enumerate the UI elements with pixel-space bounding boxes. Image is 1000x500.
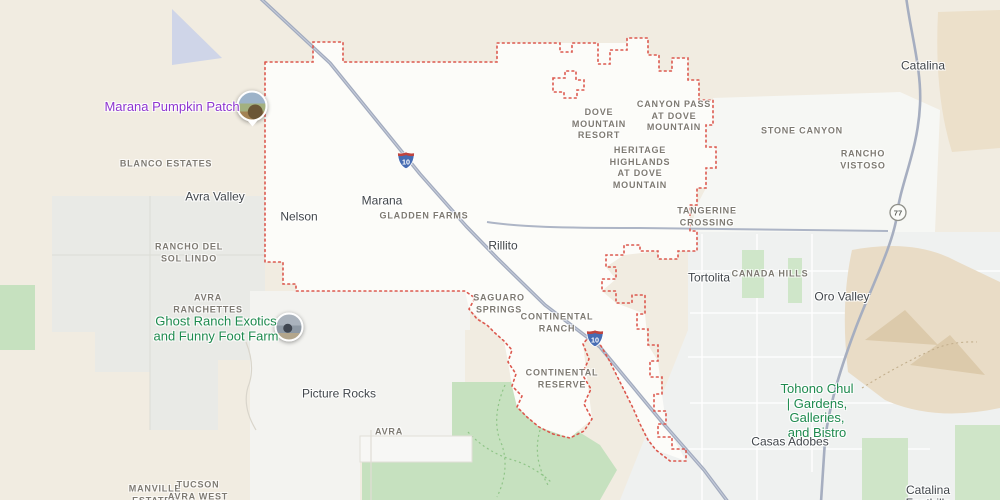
heritage-highlands-at-dove-mountain-label-text: AT DOVE [610, 168, 671, 180]
rancho-vistoso-label-text: VISTOSO [840, 160, 885, 172]
tangerine-crossing-label-text: TANGERINE [677, 206, 737, 218]
map-canvas[interactable]: 101077 Marana Pumpkin PatchBLANCO ESTATE… [0, 0, 1000, 500]
tohono-chul-label-text: Tohono Chul [781, 382, 854, 397]
tortolita-label-text: Tortolita [688, 272, 730, 285]
casas-adobes-label[interactable]: Casas Adobes [751, 436, 828, 449]
rancho-vistoso-label-text: RANCHO [840, 149, 885, 161]
tohono-chul-label-text: Galleries, [781, 411, 854, 426]
continental-ranch-label-text: RANCH [521, 323, 594, 335]
rillito-label[interactable]: Rillito [488, 240, 517, 253]
picture-rocks-label[interactable]: Picture Rocks [302, 388, 376, 401]
park-area-canada-hills-2 [788, 258, 802, 303]
continental-reserve-label-text: CONTINENTAL [526, 368, 599, 380]
nelson-label-text: Nelson [280, 211, 317, 224]
park-area-west [0, 285, 35, 350]
tohono-chul-label-text: | Gardens, [781, 397, 854, 412]
dove-mountain-resort-label-text: RESORT [572, 130, 626, 142]
rancho-vistoso-label[interactable]: RANCHOVISTOSO [840, 149, 885, 172]
tucson-avra-west-label-text: TUCSON [168, 480, 228, 492]
catalina-label[interactable]: Catalina [901, 60, 945, 73]
picture-rocks-label-text: Picture Rocks [302, 388, 376, 401]
tortolita-label[interactable]: Tortolita [688, 272, 730, 285]
saguaro-springs-label-text: SAGUARO [473, 293, 525, 305]
marana-label-text: Marana [362, 195, 403, 208]
tohono-chul-label[interactable]: Tohono Chul| Gardens,Galleries,and Bistr… [781, 382, 854, 440]
avra-parcel [360, 436, 472, 462]
catalina-foothills-label[interactable]: CatalinaFoothills [906, 484, 951, 500]
avra-ranchettes-label-text: AVRA [173, 293, 243, 305]
heritage-highlands-at-dove-mountain-label-text: HIGHLANDS [610, 157, 671, 169]
park-area-southeast [862, 438, 908, 500]
saguaro-springs-label-text: SPRINGS [473, 304, 525, 316]
canyon-pass-at-dove-mountain-label-text: MOUNTAIN [637, 122, 711, 134]
marana-pumpkin-patch-photo-marker[interactable] [237, 91, 268, 122]
ghost-ranch-label-text: and Funny Foot Farm [154, 329, 279, 344]
avra-valley-label[interactable]: Avra Valley [185, 191, 245, 204]
stone-canyon-label-text: STONE CANYON [761, 125, 843, 137]
avra-label-text: AVRA [375, 426, 403, 438]
continental-reserve-label[interactable]: CONTINENTALRESERVE [526, 368, 599, 391]
rancho-del-sol-lindo-label-text: SOL LINDO [155, 253, 223, 265]
canyon-pass-at-dove-mountain-label-text: AT DOVE [637, 110, 711, 122]
gladden-farms-label[interactable]: GLADDEN FARMS [380, 210, 469, 222]
heritage-highlands-at-dove-mountain-label[interactable]: HERITAGEHIGHLANDSAT DOVEMOUNTAIN [610, 145, 671, 191]
canyon-pass-at-dove-mountain-label[interactable]: CANYON PASSAT DOVEMOUNTAIN [637, 99, 711, 134]
rillito-label-text: Rillito [488, 240, 517, 253]
marana-pumpkin-patch-label-text: Marana Pumpkin Patch [104, 100, 239, 115]
ghost-ranch-photo-marker[interactable] [275, 313, 304, 342]
tucson-avra-west-label[interactable]: TUCSONAVRA WEST [168, 480, 228, 500]
continental-ranch-label[interactable]: CONTINENTALRANCH [521, 312, 594, 335]
dove-mountain-resort-label-text: MOUNTAIN [572, 118, 626, 130]
terrain-area-northeast [937, 10, 1000, 152]
oro-valley-label-text: Oro Valley [814, 291, 869, 304]
ghost-ranch-label[interactable]: Ghost Ranch Exoticsand Funny Foot Farm [154, 315, 279, 344]
rancho-del-sol-lindo-label-text: RANCHO DEL [155, 242, 223, 254]
avra-valley-label-text: Avra Valley [185, 191, 245, 204]
dove-mountain-resort-label-text: DOVE [572, 107, 626, 119]
canyon-pass-at-dove-mountain-label-text: CANYON PASS [637, 99, 711, 111]
avra-ranchettes-label[interactable]: AVRARANCHETTES [173, 293, 243, 316]
rancho-del-sol-lindo-label[interactable]: RANCHO DELSOL LINDO [155, 242, 223, 265]
nelson-label[interactable]: Nelson [280, 211, 317, 224]
casas-adobes-label-text: Casas Adobes [751, 436, 828, 449]
heritage-highlands-at-dove-mountain-label-text: MOUNTAIN [610, 180, 671, 192]
dove-mountain-resort-label[interactable]: DOVEMOUNTAINRESORT [572, 107, 626, 142]
marana-label[interactable]: Marana [362, 195, 403, 208]
marana-pumpkin-patch-label[interactable]: Marana Pumpkin Patch [104, 100, 239, 115]
oro-valley-label[interactable]: Oro Valley [814, 291, 869, 304]
catalina-label-text: Catalina [901, 60, 945, 73]
continental-ranch-label-text: CONTINENTAL [521, 312, 594, 324]
stone-canyon-label[interactable]: STONE CANYON [761, 125, 843, 137]
tangerine-crossing-label-text: CROSSING [677, 217, 737, 229]
blanco-estates-label-text: BLANCO ESTATES [120, 158, 212, 170]
canada-hills-label[interactable]: CANADA HILLS [732, 268, 809, 280]
avra-label[interactable]: AVRA [375, 426, 403, 438]
tangerine-crossing-label[interactable]: TANGERINECROSSING [677, 206, 737, 229]
tucson-avra-west-label-text: AVRA WEST [168, 491, 228, 500]
park-area-southeast-2 [955, 425, 1000, 500]
blanco-estates-label[interactable]: BLANCO ESTATES [120, 158, 212, 170]
ghost-ranch-label-text: Ghost Ranch Exotics [154, 315, 279, 330]
gladden-farms-label-text: GLADDEN FARMS [380, 210, 469, 222]
heritage-highlands-at-dove-mountain-label-text: HERITAGE [610, 145, 671, 157]
canada-hills-label-text: CANADA HILLS [732, 268, 809, 280]
saguaro-springs-label[interactable]: SAGUAROSPRINGS [473, 293, 525, 316]
continental-reserve-label-text: RESERVE [526, 379, 599, 391]
